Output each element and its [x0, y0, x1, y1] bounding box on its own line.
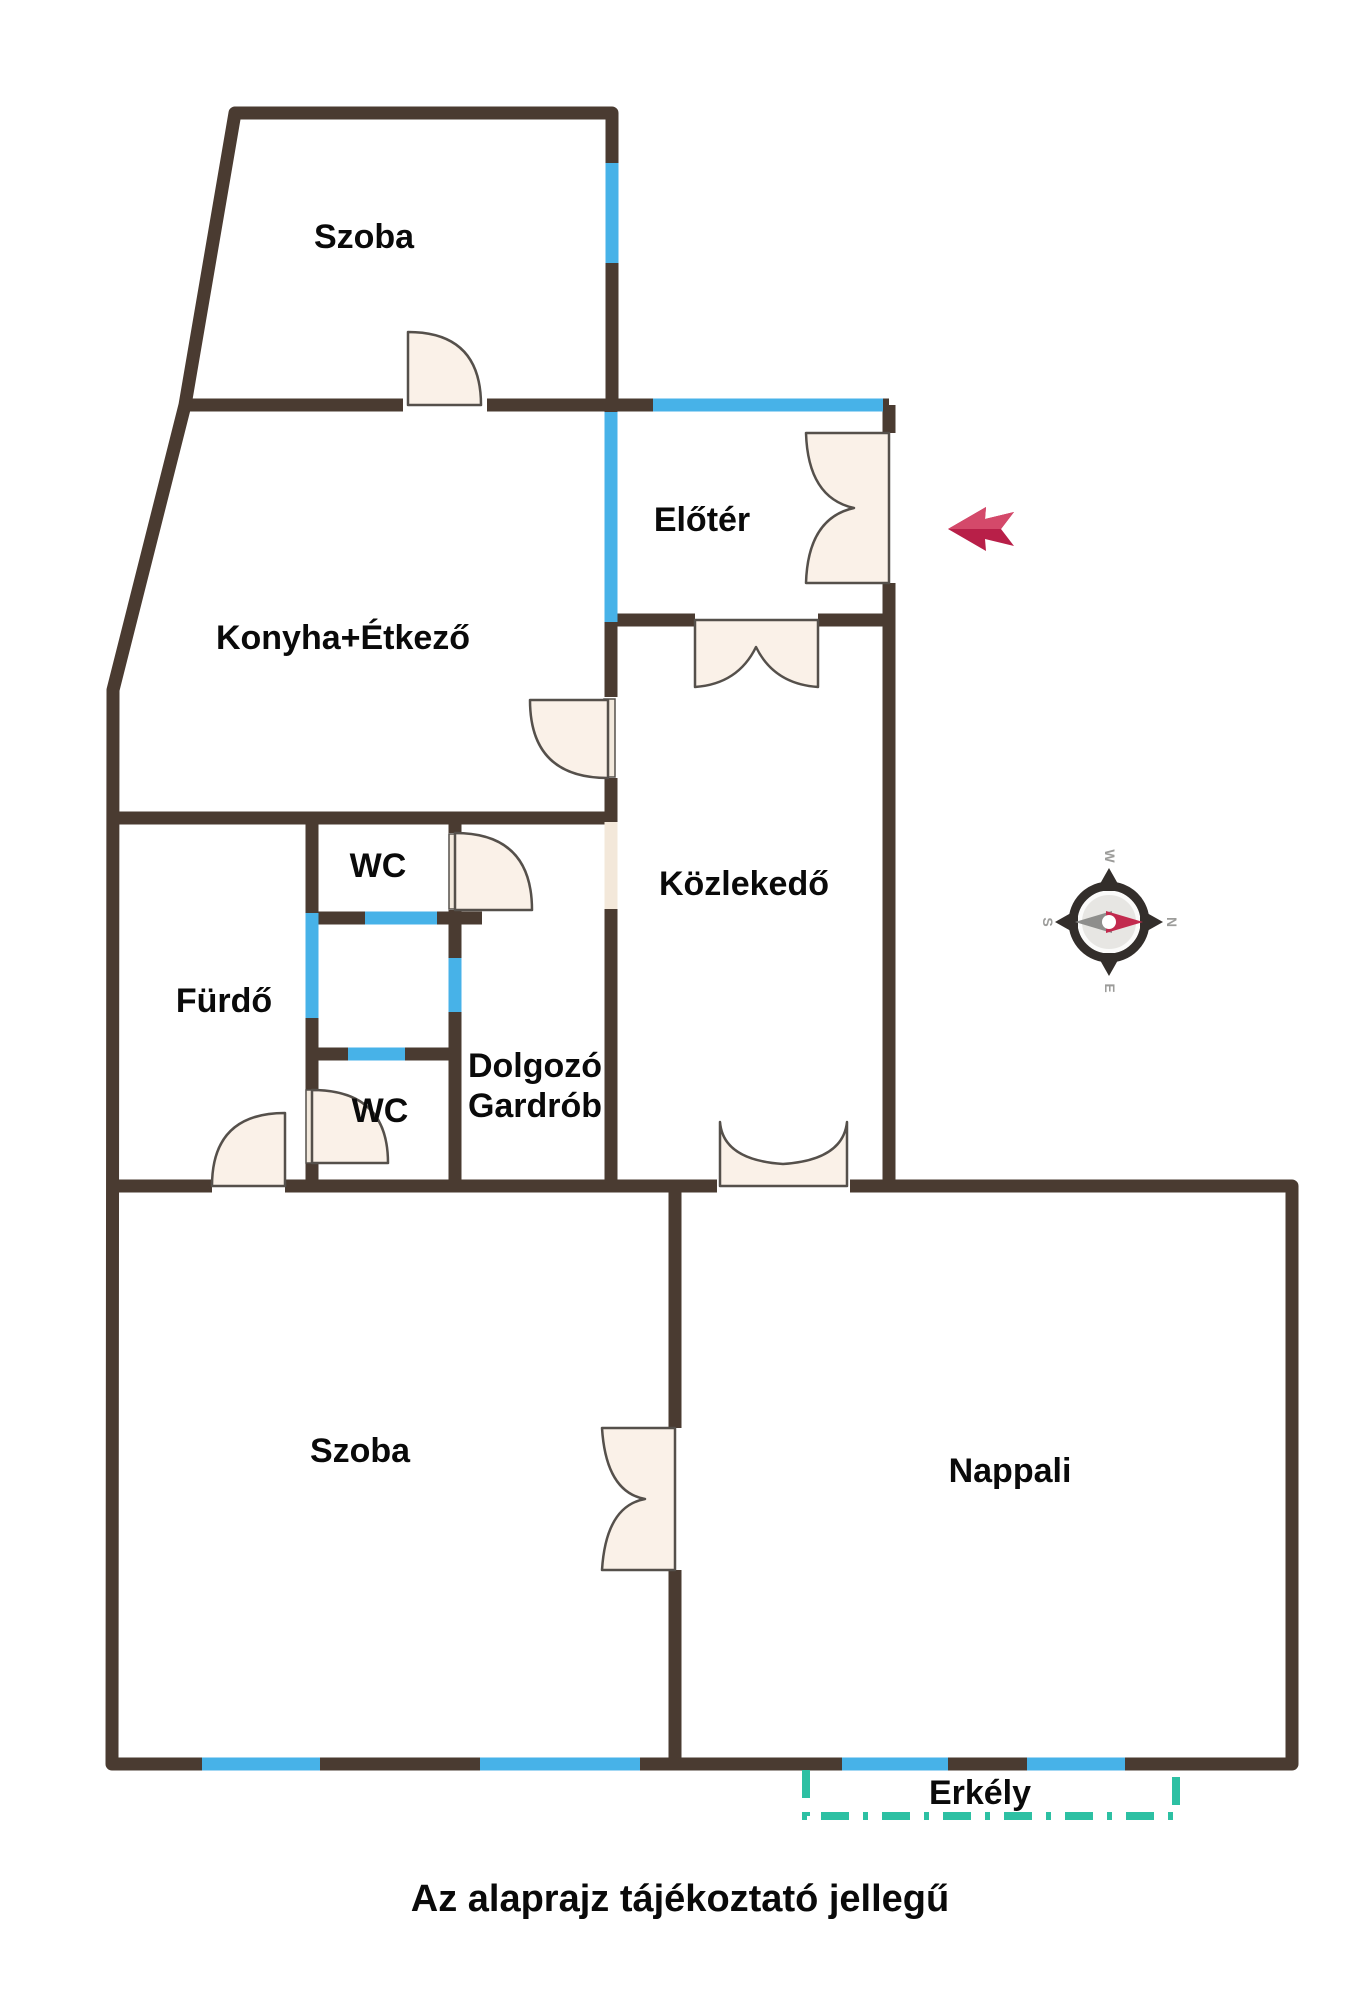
compass: W N S E [1040, 849, 1180, 992]
room-label-eloter: Előtér [654, 501, 750, 539]
door-eloter-kozlekedo [695, 620, 818, 687]
room-label-konyha: Konyha+Étkező [216, 619, 470, 657]
compass-label-e: E [1102, 983, 1118, 992]
room-label-wc-lower: WC [352, 1092, 409, 1130]
room-label-nappali: Nappali [949, 1452, 1072, 1490]
door-entrance [806, 433, 889, 583]
door-kozlekedo-nappali [720, 1122, 847, 1186]
entry-arrow-highlight [948, 507, 1014, 529]
compass-label-w: W [1102, 849, 1118, 863]
room-label-dolgozo: Dolgozó [468, 1047, 602, 1085]
door-konyha-kozlekedo [530, 700, 608, 778]
compass-hub [1102, 915, 1116, 929]
door-szoba-nappali [602, 1428, 675, 1570]
room-label-erkely: Erkély [929, 1774, 1031, 1812]
room-label-gardrob: Gardrób [468, 1087, 602, 1125]
disclaimer-text: Az alaprajz tájékoztató jellegű [411, 1878, 949, 1920]
door-wc-upper [455, 833, 532, 910]
compass-label-s: S [1040, 917, 1056, 926]
compass-label-n: N [1164, 917, 1180, 927]
room-label-szoba-bottom: Szoba [310, 1432, 411, 1470]
door-szoba-top [408, 332, 481, 405]
room-label-szoba-top: Szoba [314, 218, 415, 256]
room-label-furdo: Fürdő [176, 982, 272, 1020]
floor-plan-page: W N S E Szoba Konyha+Étkező Előtér Közle… [0, 0, 1360, 2000]
entry-arrow-icon [948, 507, 1014, 551]
room-label-wc-upper: WC [350, 847, 407, 885]
door-furdo [212, 1113, 285, 1186]
room-label-kozlekedo: Közlekedő [659, 865, 829, 903]
floor-plan: W N S E Szoba Konyha+Étkező Előtér Közle… [0, 0, 1360, 2000]
